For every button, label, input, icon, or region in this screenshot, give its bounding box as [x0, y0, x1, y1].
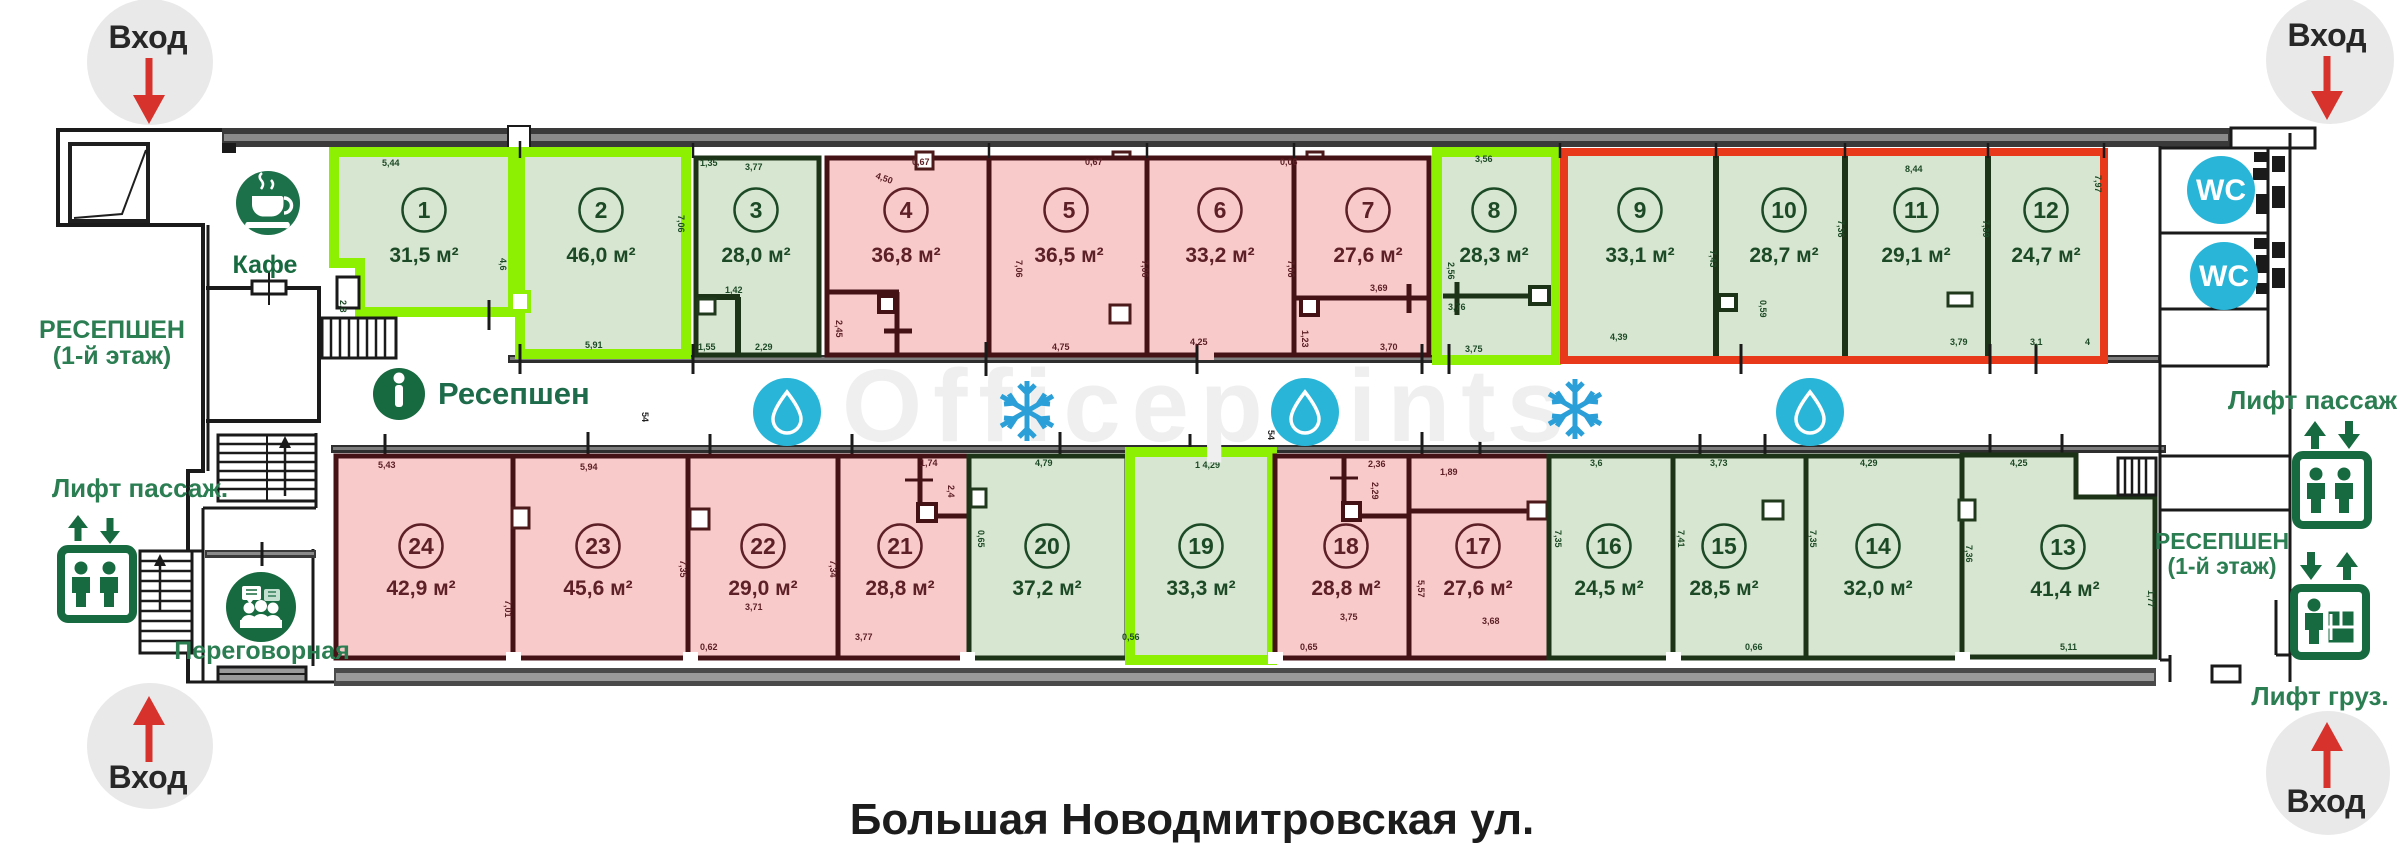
svg-text:7,06: 7,06: [1286, 260, 1296, 278]
svg-text:7,35: 7,35: [1808, 530, 1818, 548]
svg-text:27,6 м²: 27,6 м²: [1333, 244, 1402, 267]
svg-text:33,2 м²: 33,2 м²: [1185, 244, 1254, 267]
svg-text:Лифт пассаж.: Лифт пассаж.: [2228, 385, 2398, 415]
svg-text:24,5 м²: 24,5 м²: [1574, 577, 1643, 600]
svg-text:1,35: 1,35: [700, 158, 718, 168]
svg-text:3,1: 3,1: [2030, 337, 2043, 347]
svg-text:24: 24: [408, 533, 434, 559]
svg-text:0,67: 0,67: [912, 157, 930, 167]
svg-text:Ресепшен: Ресепшен: [438, 376, 590, 411]
svg-text:3: 3: [750, 197, 763, 223]
svg-text:22: 22: [750, 533, 776, 559]
svg-text:19: 19: [1188, 533, 1214, 559]
svg-text:8,44: 8,44: [1905, 164, 1923, 174]
svg-text:2: 2: [595, 197, 608, 223]
svg-text:2,8: 2,8: [338, 300, 348, 313]
svg-text:7,97: 7,97: [2093, 175, 2103, 193]
svg-text:13: 13: [2050, 534, 2076, 560]
svg-text:2,29: 2,29: [755, 342, 773, 352]
svg-text:5: 5: [1063, 197, 1076, 223]
svg-text:3,71: 3,71: [745, 602, 763, 612]
svg-text:7,39: 7,39: [1981, 220, 1991, 238]
svg-text:7,01: 7,01: [503, 600, 513, 618]
svg-text:29,1 м²: 29,1 м²: [1881, 244, 1950, 267]
svg-text:14: 14: [1865, 533, 1891, 559]
svg-text:3,76: 3,76: [1448, 302, 1466, 312]
svg-text:28,8 м²: 28,8 м²: [865, 577, 934, 600]
svg-text:11: 11: [1904, 197, 1929, 223]
svg-text:7,41: 7,41: [1676, 530, 1686, 548]
svg-text:1,77: 1,77: [2146, 590, 2156, 608]
svg-text:4: 4: [2085, 337, 2090, 347]
svg-text:РЕСЕПШЕН: РЕСЕПШЕН: [2155, 528, 2289, 554]
svg-text:Большая Новодмитровская ул.: Большая Новодмитровская ул.: [850, 795, 1535, 844]
svg-text:17: 17: [1465, 533, 1491, 559]
svg-text:Лифт груз.: Лифт груз.: [2251, 681, 2388, 711]
svg-text:31,5 м²: 31,5 м²: [389, 244, 458, 267]
svg-text:23: 23: [585, 533, 611, 559]
svg-text:3,56: 3,56: [1475, 154, 1493, 164]
svg-text:Вход: Вход: [2287, 17, 2366, 53]
svg-text:0,65: 0,65: [976, 530, 986, 548]
svg-text:Лифт пассаж.: Лифт пассаж.: [52, 473, 228, 503]
svg-text:28,0 м²: 28,0 м²: [721, 244, 790, 267]
svg-text:36,5 м²: 36,5 м²: [1034, 244, 1103, 267]
svg-text:3,79: 3,79: [1950, 337, 1968, 347]
svg-text:Переговорная: Переговорная: [174, 637, 350, 665]
svg-text:9: 9: [1634, 197, 1647, 223]
svg-text:10: 10: [1771, 197, 1797, 223]
svg-text:6: 6: [1214, 197, 1227, 223]
svg-text:2,45: 2,45: [834, 320, 844, 338]
svg-text:7,43: 7,43: [1708, 250, 1718, 268]
svg-text:33,1 м²: 33,1 м²: [1605, 244, 1674, 267]
svg-text:WC: WC: [2199, 260, 2249, 293]
svg-text:0,59: 0,59: [1758, 300, 1768, 318]
svg-text:33,3 м²: 33,3 м²: [1166, 577, 1235, 600]
svg-text:3,6: 3,6: [1590, 458, 1603, 468]
svg-text:Вход: Вход: [108, 19, 187, 55]
svg-text:Вход: Вход: [2286, 783, 2365, 819]
svg-text:37,2 м²: 37,2 м²: [1012, 577, 1081, 600]
svg-text:5,57: 5,57: [1416, 580, 1426, 598]
svg-text:27,6 м²: 27,6 м²: [1443, 577, 1512, 600]
svg-text:41,4 м²: 41,4 м²: [2030, 578, 2099, 601]
svg-text:3,68: 3,68: [1482, 616, 1500, 626]
svg-text:Вход: Вход: [108, 759, 187, 795]
svg-text:42,9 м²: 42,9 м²: [386, 577, 455, 600]
svg-text:32,0 м²: 32,0 м²: [1843, 577, 1912, 600]
svg-text:28,8 м²: 28,8 м²: [1311, 577, 1380, 600]
svg-text:0,56: 0,56: [1122, 632, 1140, 642]
svg-text:5,43: 5,43: [378, 460, 396, 470]
svg-text:1,23: 1,23: [1300, 330, 1310, 348]
svg-text:28,3 м²: 28,3 м²: [1459, 244, 1528, 267]
svg-text:7,36: 7,36: [1836, 220, 1846, 238]
svg-text:7,06: 7,06: [676, 215, 686, 233]
svg-text:7,36: 7,36: [1964, 545, 1974, 563]
svg-text:3,75: 3,75: [1340, 612, 1358, 622]
svg-text:(1-й этаж): (1-й этаж): [53, 342, 172, 370]
svg-text:7,34: 7,34: [828, 560, 838, 578]
svg-text:21: 21: [887, 533, 913, 559]
svg-text:Officepoints: Officepoints: [842, 348, 1575, 463]
svg-text:2,4: 2,4: [946, 485, 956, 498]
svg-text:24,7 м²: 24,7 м²: [2011, 244, 2080, 267]
svg-text:РЕСЕПШЕН: РЕСЕПШЕН: [39, 316, 185, 344]
svg-text:16: 16: [1596, 533, 1622, 559]
svg-text:4,25: 4,25: [1190, 337, 1208, 347]
svg-text:Кафе: Кафе: [233, 251, 298, 279]
svg-text:29,0 м²: 29,0 м²: [728, 577, 797, 600]
svg-text:20: 20: [1034, 533, 1060, 559]
svg-text:2,29: 2,29: [1370, 482, 1380, 500]
svg-text:18: 18: [1333, 533, 1359, 559]
svg-text:3,77: 3,77: [745, 162, 763, 172]
svg-text:7: 7: [1362, 197, 1375, 223]
svg-text:1,89: 1,89: [1440, 467, 1458, 477]
svg-text:4,25: 4,25: [2010, 458, 2028, 468]
svg-text:WC: WC: [2196, 174, 2246, 207]
svg-text:5,91: 5,91: [585, 340, 603, 350]
svg-text:0,66: 0,66: [1745, 642, 1763, 652]
svg-text:0,06: 0,06: [1280, 157, 1298, 167]
svg-text:7,06: 7,06: [1014, 260, 1024, 278]
svg-text:4,39: 4,39: [1610, 332, 1628, 342]
svg-text:7,35: 7,35: [678, 560, 688, 578]
svg-text:46,0 м²: 46,0 м²: [566, 244, 635, 267]
svg-text:4,29: 4,29: [1860, 458, 1878, 468]
svg-text:28,5 м²: 28,5 м²: [1689, 577, 1758, 600]
svg-text:0,67: 0,67: [1085, 157, 1103, 167]
svg-text:1,42: 1,42: [725, 285, 743, 295]
svg-text:3,77: 3,77: [855, 632, 873, 642]
svg-text:3,69: 3,69: [1370, 283, 1388, 293]
svg-text:8: 8: [1488, 197, 1501, 223]
svg-text:7,06: 7,06: [1140, 260, 1150, 278]
svg-text:4: 4: [900, 197, 913, 223]
svg-text:12: 12: [2033, 197, 2059, 223]
svg-text:1: 1: [418, 197, 431, 223]
svg-text:45,6 м²: 45,6 м²: [563, 577, 632, 600]
svg-text:0,65: 0,65: [1300, 642, 1318, 652]
svg-text:3,73: 3,73: [1710, 458, 1728, 468]
svg-text:5,94: 5,94: [580, 462, 598, 472]
svg-text:1,55: 1,55: [698, 342, 716, 352]
svg-text:5,11: 5,11: [2060, 642, 2077, 652]
svg-text:28,7 м²: 28,7 м²: [1749, 244, 1818, 267]
svg-text:54: 54: [640, 412, 650, 422]
svg-text:(1-й этаж): (1-й этаж): [2167, 553, 2276, 579]
svg-text:0,62: 0,62: [700, 642, 718, 652]
svg-text:7,35: 7,35: [1553, 530, 1563, 548]
svg-text:4,6: 4,6: [498, 258, 508, 271]
svg-text:36,8 м²: 36,8 м²: [871, 244, 940, 267]
svg-text:5,44: 5,44: [382, 158, 400, 168]
svg-text:2,56: 2,56: [1446, 262, 1456, 280]
svg-text:15: 15: [1711, 533, 1737, 559]
